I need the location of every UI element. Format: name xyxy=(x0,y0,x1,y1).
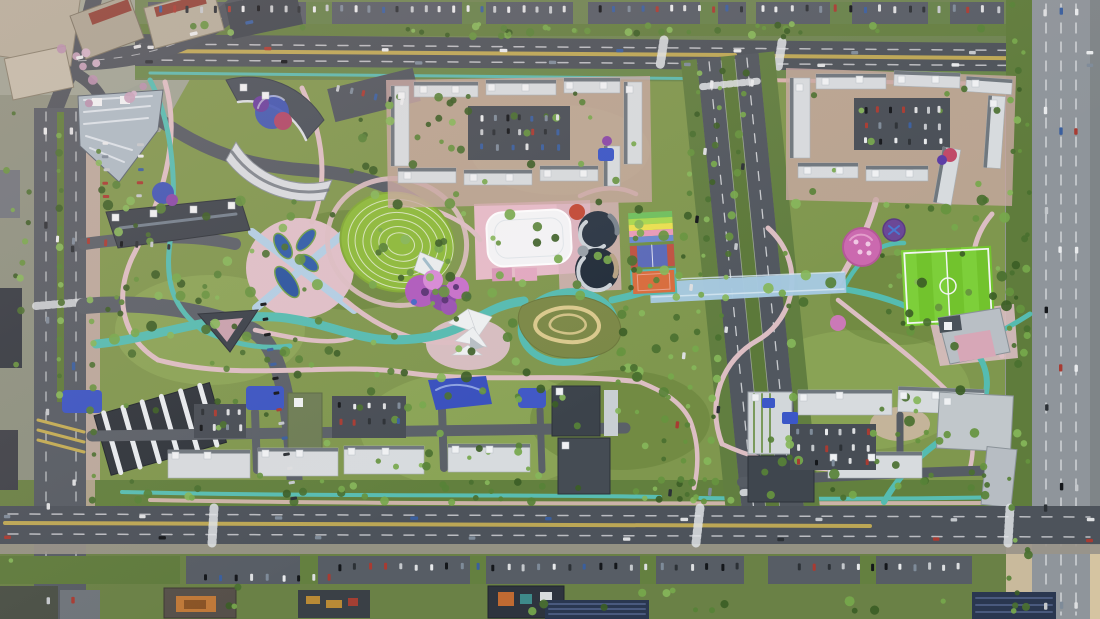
atmosphere-overlay xyxy=(0,0,1100,619)
masterplan-aerial-view xyxy=(0,0,1100,619)
aerial-masterplan-render xyxy=(0,0,1100,619)
